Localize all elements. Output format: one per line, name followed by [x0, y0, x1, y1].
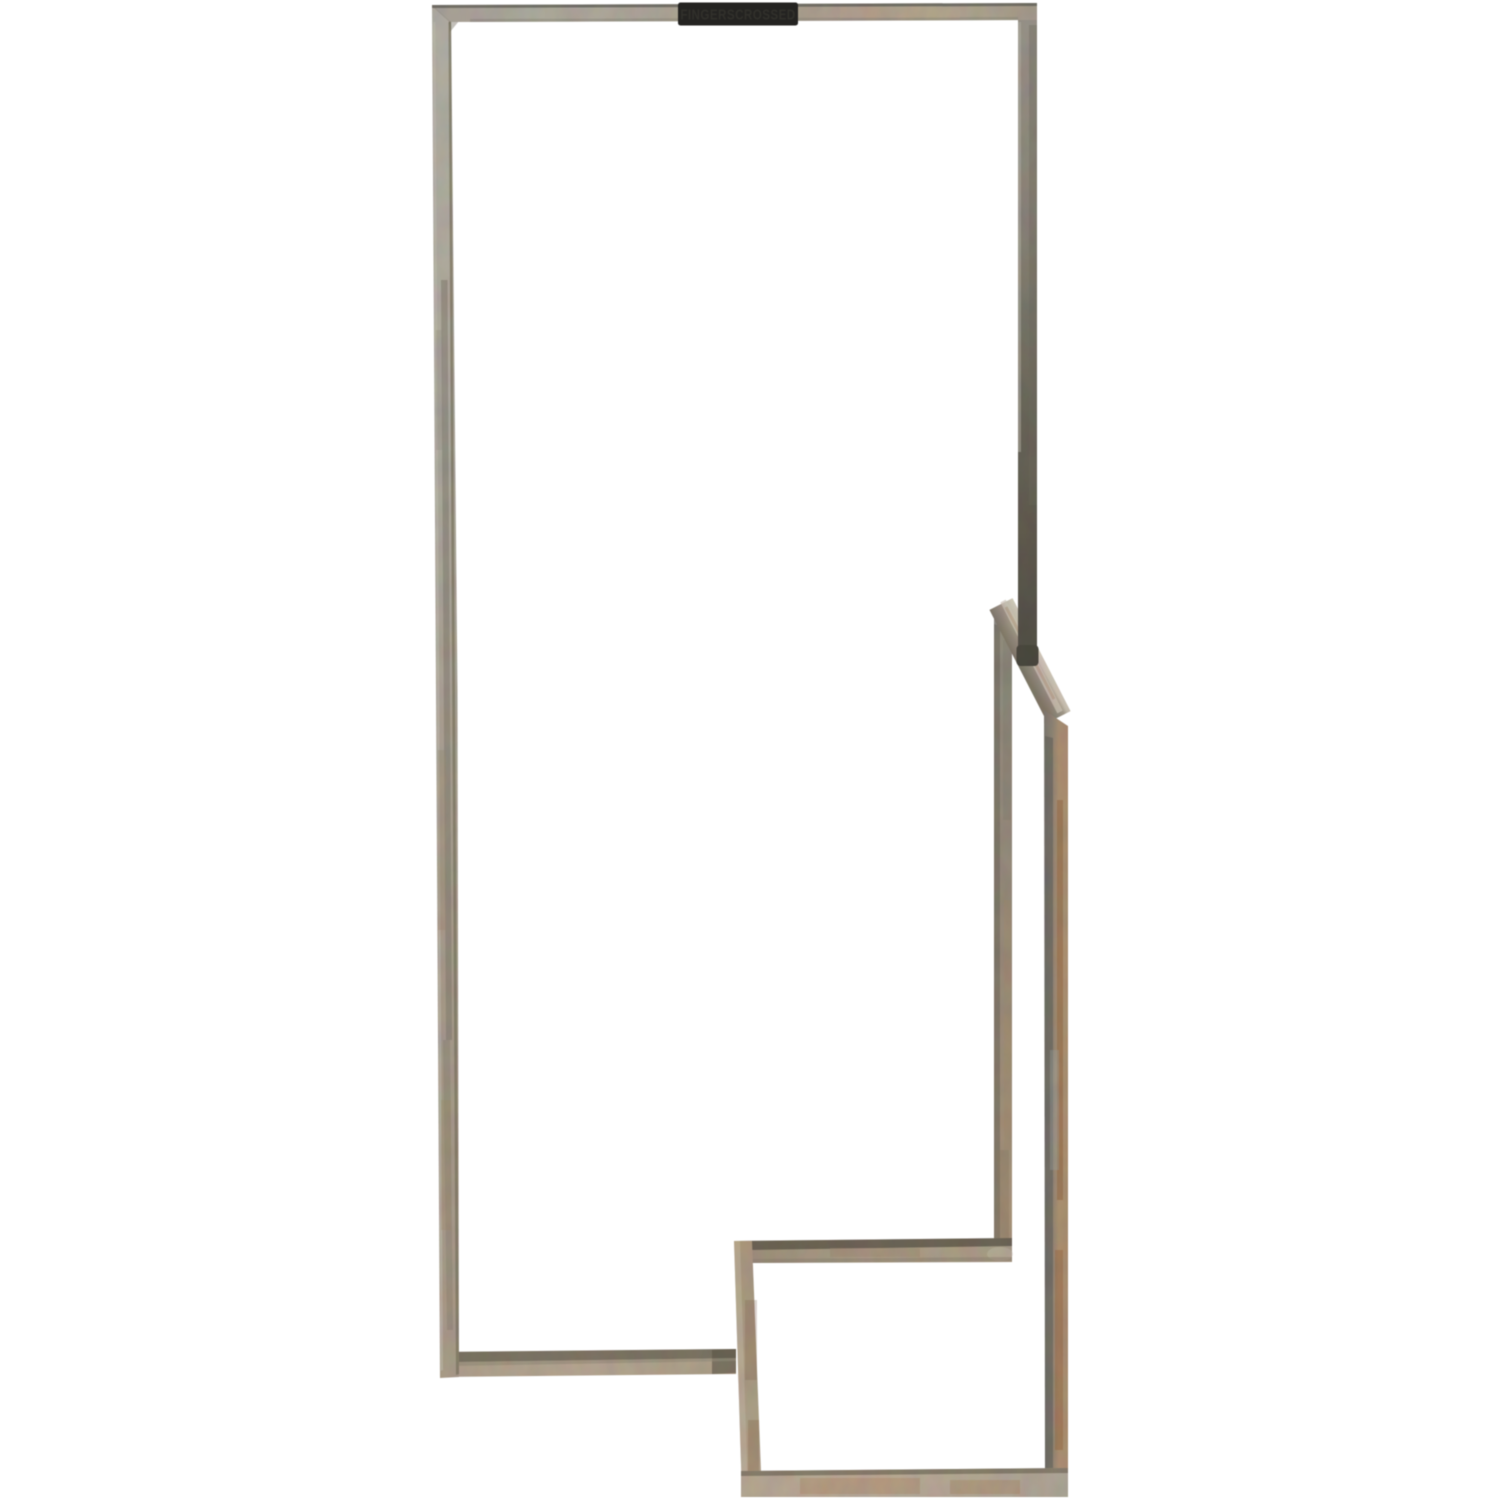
svg-text:FINGERSCROSSED: FINGERSCROSSED: [680, 6, 795, 23]
